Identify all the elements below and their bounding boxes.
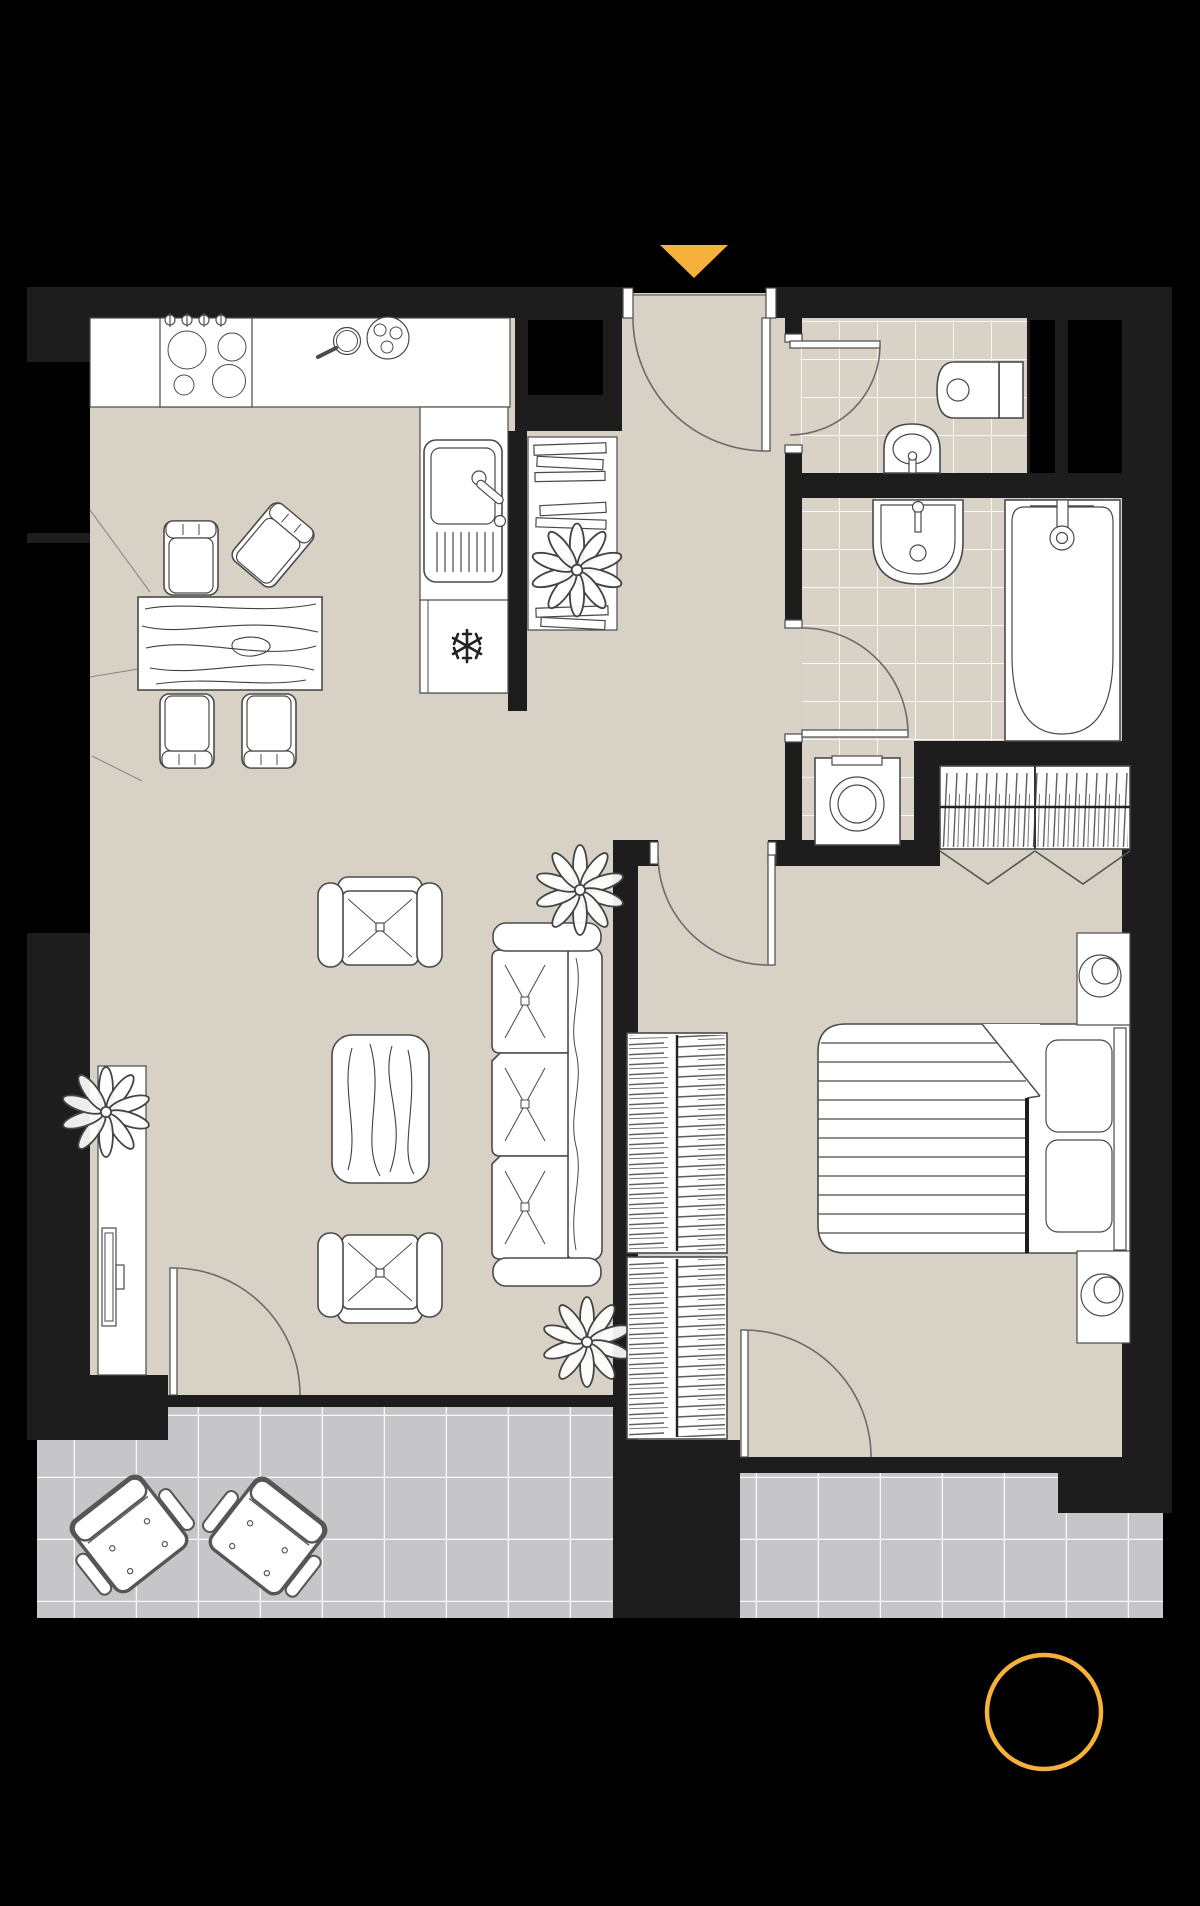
kitchen-sink [424,440,506,582]
door-leaf [768,855,775,965]
compass-circle-icon [987,1655,1101,1769]
dining-chair-1 [164,521,218,595]
dining-chair-3 [160,694,214,768]
pillow [1046,1040,1112,1132]
door-leaf [741,1330,748,1457]
bathtub [1005,500,1120,741]
sofa-armrest [493,1258,601,1286]
freezer [420,600,508,693]
nightstand-2 [1077,1251,1130,1343]
duct-void [1030,320,1055,473]
door-frame [766,288,776,318]
armchair-2 [318,1233,442,1323]
serving-plate-icon [367,317,409,359]
door-leaf [170,1268,177,1395]
duct-void-2 [1068,320,1128,473]
toilet [937,362,1023,418]
wardrobe-left [627,1033,727,1439]
headboard [1114,1028,1126,1250]
dining-chair-4 [242,694,296,768]
dining-table [138,597,322,690]
nightstand-1 [1077,933,1130,1025]
pillow [1046,1140,1112,1232]
floor-plan-canvas [0,0,1200,1906]
wc-sink [884,424,940,473]
door-leaf [762,318,770,451]
floor-plan-drawing [0,0,1200,1906]
coffee-table [332,1035,429,1183]
bookshelf [528,437,623,630]
sofa [492,923,602,1286]
bathroom-sink [873,500,963,584]
tv [102,1228,116,1326]
double-bed [818,1024,1130,1253]
armchair-1 [318,877,442,967]
shaft-void [528,320,603,395]
door-leaf [802,730,908,737]
entrance-arrow-icon [660,245,728,278]
door-frame [623,288,633,318]
stove [160,313,252,407]
door-leaf [790,341,880,348]
washing-machine [815,756,900,845]
